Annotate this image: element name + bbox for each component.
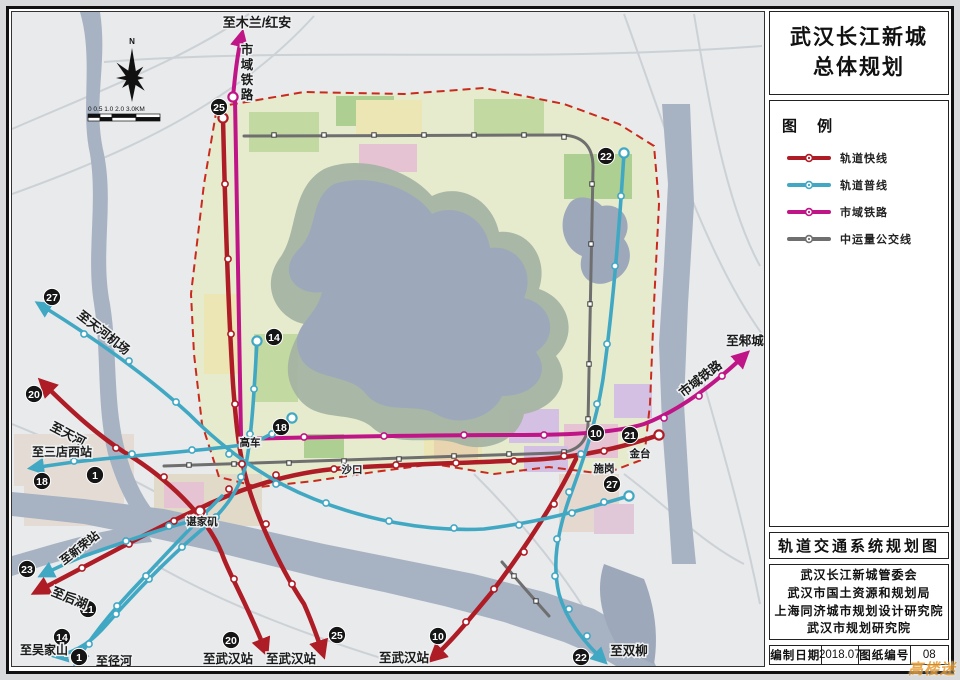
station-marker [393,462,399,468]
station-marker [81,331,87,337]
station-marker [601,499,607,505]
station-marker [601,448,607,454]
legend-line-symbol [786,152,832,164]
station-marker [618,193,624,199]
station-marker [143,573,149,579]
line-number: 25 [331,630,343,642]
legend-item: 中运量公交线 [786,231,936,247]
station-marker [289,581,295,587]
brt-stop [422,133,426,137]
station-marker [511,458,517,464]
line-number: 25 [213,102,225,114]
station-marker [386,518,392,524]
line-number: 27 [46,292,58,304]
station-marker [541,432,547,438]
line-number: 22 [600,151,612,163]
map-label: 施岗 [594,462,615,475]
brt-stop [397,457,401,461]
watermark: 高楼迷 [908,658,956,679]
station-marker [129,451,135,457]
scale-segment [88,114,100,118]
map-label: 至吴家山 [20,642,68,657]
legend-item-label: 中运量公交线 [840,231,912,247]
brt-stop [272,133,276,137]
station-marker [331,466,337,472]
station-marker [113,611,119,617]
station-marker [173,399,179,405]
station-marker [661,415,667,421]
terminus-marker [228,92,237,101]
legend-line-symbol [786,206,832,218]
legend-title: 图 例 [782,115,936,136]
terminus-marker [624,491,633,500]
line-number: 18 [36,476,48,488]
brt-stop [512,574,516,578]
credits: 武汉长江新城管委会 武汉市国土资源和规划局 上海同济城市规划设计研究院 武汉市规… [769,564,949,640]
scale-segment [112,114,136,118]
terminus-marker [195,506,204,515]
sheet-title: 武汉长江新城 总体规划 [769,11,949,95]
map-label: 高车 [240,436,261,449]
station-marker [251,386,257,392]
line-number: 14 [56,632,68,644]
date-label: 编制日期 [770,646,822,664]
map-label: 至径河 [96,653,132,666]
station-marker [79,565,85,571]
brt-stop [587,362,591,366]
legend: 图 例 轨道快线轨道普线市域铁路中运量公交线 [769,100,949,527]
legend-item-label: 轨道快线 [840,150,888,166]
station-marker [551,501,557,507]
station-marker [171,518,177,524]
transit-plan-map: 252214272018118232114120251010212722 至木兰… [12,12,764,666]
station-marker [604,341,610,347]
brt-stop [586,417,590,421]
station-marker [273,472,279,478]
line-number: 14 [268,332,280,344]
station-marker [179,544,185,550]
sheet-no-label: 图纸编号 [859,646,911,664]
legend-items: 轨道快线轨道普线市域铁路中运量公交线 [782,150,936,247]
sheet-title-line1: 武汉长江新城 [790,23,928,53]
terminus-marker [654,430,663,439]
credit-line: 武汉市国土资源和规划局 [787,585,930,602]
map-label: 至武汉站 [266,651,317,666]
line-number: 1 [76,652,82,664]
brt-stop [322,133,326,137]
line-number: 22 [575,652,587,664]
station-marker [273,481,279,487]
station-marker [166,523,172,529]
legend-item: 轨道普线 [786,177,936,193]
station-marker [594,401,600,407]
legend-line-symbol [786,179,832,191]
map-label: 至三店西站 [32,444,92,459]
brt-stop [562,135,566,139]
station-marker [226,486,232,492]
scale-segment [136,118,160,122]
station-marker [123,538,129,544]
station-marker [228,331,234,337]
station-marker [225,256,231,262]
station-marker [323,500,329,506]
legend-item: 轨道快线 [786,150,936,166]
date-value: 2018.07 [822,646,859,664]
station-marker [301,434,307,440]
terminus-marker [287,413,296,422]
line-number: 23 [21,564,33,576]
sheet-frame: 252214272018118232114120251010212722 至木兰… [6,6,954,674]
station-marker [381,433,387,439]
map-label: 至双柳 [610,643,648,658]
station-marker [222,181,228,187]
title-panel: 武汉长江新城 总体规划 图 例 轨道快线轨道普线市域铁路中运量公交线 轨道交通系… [769,11,949,665]
map-label: 至武汉站 [203,651,254,666]
terminus-marker [252,336,261,345]
credit-line: 武汉长江新城管委会 [800,567,917,584]
station-marker [86,641,92,647]
brt-stop [590,182,594,186]
station-marker [114,603,120,609]
brt-stop [452,454,456,458]
station-marker [126,358,132,364]
brt-stop [472,133,476,137]
station-marker [226,451,232,457]
station-marker [584,633,590,639]
map-label: 谌家矶 [186,515,218,528]
map-label: 金台 [629,447,651,460]
station-marker [451,525,457,531]
scale-segment [112,118,136,122]
station-marker [161,474,167,480]
station-marker [566,606,572,612]
line-number: 18 [275,422,287,434]
station-marker [189,447,195,453]
line-number: 21 [624,430,636,442]
sheet-title-line2: 总体规划 [813,53,905,83]
station-marker [113,445,119,451]
brt-stop [507,452,511,456]
scale-labels: 0 0.5 1.0 2.0 3.0KM [88,106,145,113]
brt-stop [372,133,376,137]
line-number: 20 [28,389,40,401]
line-number: 20 [225,635,237,647]
map-label: 至武汉站 [379,650,430,665]
station-marker [463,619,469,625]
scale-segment [136,114,160,118]
station-marker [566,489,572,495]
station-marker [569,510,575,516]
scale-segment [100,114,112,118]
brt-stop [287,461,291,465]
brt-stop [534,599,538,603]
credit-line: 武汉市规划研究院 [807,620,911,637]
map-canvas: 252214272018118232114120251010212722 至木兰… [11,11,765,667]
north-label: N [129,37,135,46]
brt-stop [588,302,592,306]
brt-stop [187,463,191,467]
station-marker [263,521,269,527]
station-marker [612,263,618,269]
brt-stop [522,133,526,137]
station-marker [719,373,725,379]
brt-stop [342,459,346,463]
scale-segment [100,118,112,122]
legend-line-symbol [786,233,832,245]
brt-stop [589,242,593,246]
station-marker [238,474,244,480]
credit-line: 上海同济城市规划设计研究院 [774,603,943,620]
line-number: 10 [590,428,602,440]
legend-item-label: 轨道普线 [840,177,888,193]
line-number: 27 [606,479,618,491]
station-marker [554,536,560,542]
brt-stop [232,462,236,466]
legend-item-label: 市域铁路 [840,204,888,220]
station-marker [491,586,497,592]
line-number: 1 [92,470,98,482]
station-marker [453,460,459,466]
map-label: 至木兰/红安 [223,15,292,30]
planning-sheet: 252214272018118232114120251010212722 至木兰… [0,0,960,680]
scale-segment [88,118,100,122]
legend-item: 市域铁路 [786,204,936,220]
map-label: 沙口 [342,464,363,476]
station-marker [232,401,238,407]
station-marker [552,573,558,579]
station-marker [696,393,702,399]
map-label: 至邾城 [726,333,764,348]
map-sheet-title: 轨道交通系统规划图 [769,532,949,559]
station-marker [461,432,467,438]
line-number: 10 [432,631,444,643]
station-marker [578,451,584,457]
station-marker [516,522,522,528]
station-marker [521,549,527,555]
station-marker [231,576,237,582]
station-marker [561,453,567,459]
station-marker [239,461,245,467]
terminus-marker [619,148,628,157]
